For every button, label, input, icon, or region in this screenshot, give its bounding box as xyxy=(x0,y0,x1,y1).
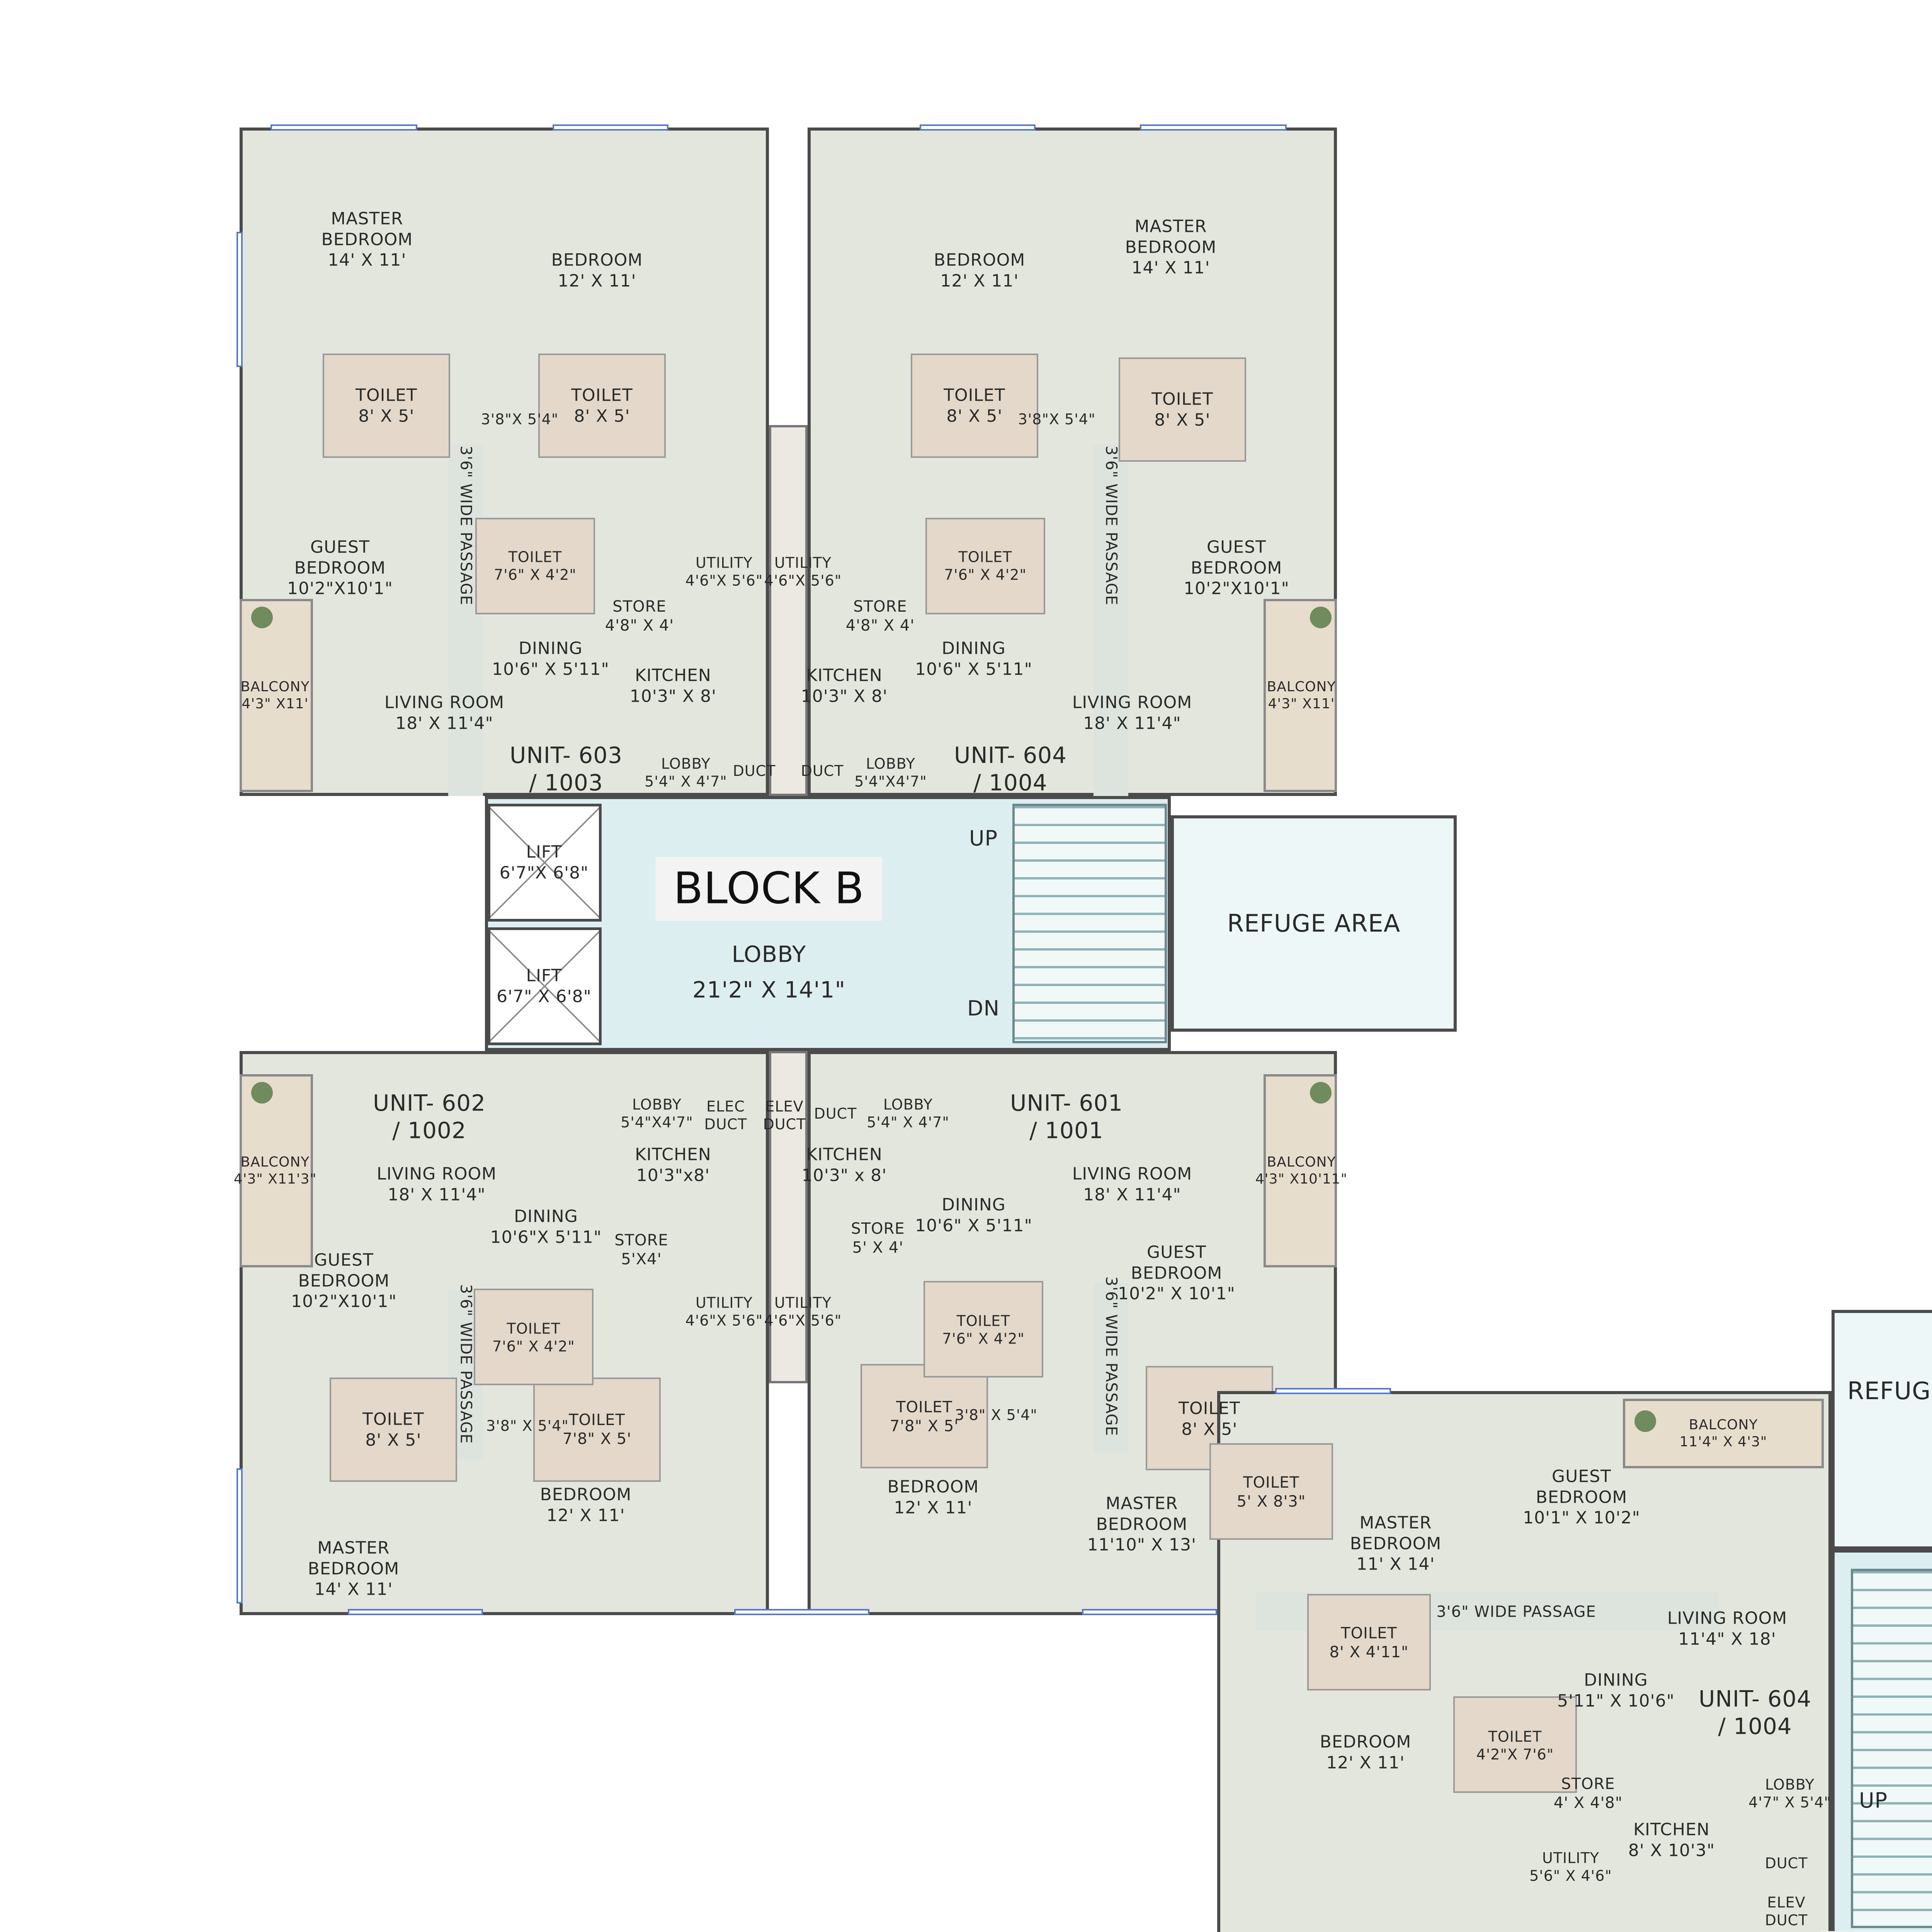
room-label: DINING10'6" X 5'11" xyxy=(492,638,609,679)
room-label: STORE4'8" X 4' xyxy=(846,597,915,635)
lobby-dim-label: LOBBY5'4" X 4'7" xyxy=(867,1096,949,1132)
duct-label: DUCT xyxy=(733,762,776,780)
room-label: BALCONY4'3" X11' xyxy=(241,679,310,713)
duct-label: ELEVDUCT xyxy=(763,1098,806,1134)
lobby-dim-label: LOBBY4'7" X 5'4" xyxy=(1748,1776,1831,1812)
room-label: BEDROOM12' X 11' xyxy=(934,250,1026,291)
room-label: GUESTBEDROOM10'1" X 10'2" xyxy=(1523,1466,1640,1528)
room-label: GUESTBEDROOM10'2"X10'1" xyxy=(1184,537,1289,599)
duct-label: DUCT xyxy=(1765,1854,1808,1872)
room-label: 3'6" WIDE PASSAGE xyxy=(1436,1603,1596,1622)
room-label: TOILET8' X 5' xyxy=(944,385,1005,426)
floor-plan-canvas: REFUGE FLOOR PLAN MASTERBEDROOM14' X 11'… xyxy=(0,0,1932,1932)
window-strip xyxy=(734,1609,869,1615)
duct-label: DUCT xyxy=(801,762,844,780)
room-label: BALCONY4'3" X11'3" xyxy=(234,1154,317,1188)
up-label: UP xyxy=(1859,1788,1888,1813)
room-label: GUESTBEDROOM10'2" X 10'1" xyxy=(1118,1242,1235,1304)
room-label: LIVING ROOM18' X 11'4" xyxy=(377,1163,497,1205)
room-label: TOILET7'8" X 5' xyxy=(563,1411,632,1449)
room-label: TOILET7'6" X 4'2" xyxy=(494,548,577,584)
lobby-label: LOBBY xyxy=(732,941,806,968)
room-label: UTILITY4'6"X 5'6" xyxy=(764,1294,842,1330)
service-core-area xyxy=(769,425,808,796)
room-label: LIVING ROOM11'4" X 18' xyxy=(1667,1608,1787,1649)
unit-604-label: UNIT- 604/ 1004 xyxy=(1699,1685,1811,1740)
room-label: 3'8"X 5'4" xyxy=(1018,410,1096,428)
room-label: BEDROOM12' X 11' xyxy=(888,1476,979,1518)
room-label: TOILET8' X 5' xyxy=(362,1409,424,1450)
room-label: 3'6" WIDE PASSAGE xyxy=(456,446,475,605)
window-strip xyxy=(270,124,417,131)
room-label: MASTERBEDROOM14' X 11' xyxy=(321,208,413,270)
unit-601-label: UNIT- 601/ 1001 xyxy=(1010,1089,1123,1144)
room-label: TOILET5' X 8'3" xyxy=(1237,1473,1306,1511)
plant-icon xyxy=(251,607,273,628)
plant-icon xyxy=(1310,607,1332,628)
window-strip xyxy=(1082,1609,1217,1615)
dn-label: DN xyxy=(967,996,1000,1021)
window-strip xyxy=(1140,124,1287,131)
room-label: LIVING ROOM18' X 11'4" xyxy=(384,692,504,733)
refuge-area-label: REFUGE AREA xyxy=(1227,909,1400,938)
room-label: TOILET8' X 5' xyxy=(571,385,633,426)
room-label: 3'8"X 5'4" xyxy=(481,410,559,428)
duct-label: DUCT xyxy=(814,1105,857,1122)
room-label: TOILET7'8" X 5' xyxy=(890,1398,959,1436)
lobby-dim-label: LOBBY5'4"X4'7" xyxy=(621,1096,693,1132)
room-label: UTILITY4'6"X 5'6" xyxy=(685,1294,763,1330)
unit-603-label: UNIT- 603/ 1003 xyxy=(510,742,622,796)
room-label: BALCONY4'3" X11' xyxy=(1267,679,1336,713)
room-label: 3'6" WIDE PASSAGE xyxy=(456,1284,475,1444)
room-label: 3'6" WIDE PASSAGE xyxy=(1102,1276,1121,1436)
window-strip xyxy=(920,124,1036,131)
window-strip xyxy=(236,232,243,367)
room-label: BEDROOM12' X 11' xyxy=(540,1484,632,1526)
lift-label: LIFT6'7" X 6'8" xyxy=(497,965,592,1007)
window-strip xyxy=(1275,1388,1391,1394)
room-label: DINING5'11" X 10'6" xyxy=(1557,1670,1675,1711)
room-label: TOILET7'6" X 4'2" xyxy=(492,1320,575,1356)
room-label: 3'6" WIDE PASSAGE xyxy=(1102,446,1121,605)
room-label: TOILET8' X 4'11" xyxy=(1329,1624,1408,1662)
room-label: TOILET7'6" X 4'2" xyxy=(942,1312,1025,1348)
room-label: DINING10'6"X 5'11" xyxy=(490,1206,602,1247)
room-label: TOILET8' X 5' xyxy=(355,385,417,426)
room-label: BALCONY4'3" X10'11" xyxy=(1255,1154,1347,1188)
room-label: MASTERBEDROOM11'10" X 13' xyxy=(1087,1493,1197,1555)
plant-icon xyxy=(1310,1082,1332,1104)
room-label: KITCHEN8' X 10'3" xyxy=(1628,1819,1715,1861)
window-strip xyxy=(348,1609,483,1615)
room-label: STORE5'X4' xyxy=(614,1231,668,1269)
room-label: MASTERBEDROOM14' X 11' xyxy=(308,1537,400,1600)
room-label: BEDROOM12' X 11' xyxy=(551,250,643,291)
room-label: KITCHEN10'3" x 8' xyxy=(802,1144,887,1185)
refuge-area-label: REFUGE AREA xyxy=(1847,1376,1932,1406)
lift-label: LIFT6'7"X 6'8" xyxy=(500,842,589,883)
room-label: KITCHEN10'3" X 8' xyxy=(801,665,888,706)
room-label: MASTERBEDROOM14' X 11' xyxy=(1125,216,1217,278)
unit-604-label: UNIT- 604/ 1004 xyxy=(954,742,1067,796)
room-label: 3'8" X 5'4" xyxy=(486,1417,569,1435)
room-label: BALCONY11'4" X 4'3" xyxy=(1680,1417,1767,1451)
duct-label: ELECDUCT xyxy=(704,1098,747,1134)
room-label: LIVING ROOM18' X 11'4" xyxy=(1072,1163,1192,1205)
room-label: STORE5' X 4' xyxy=(851,1219,905,1257)
room-label: MASTERBEDROOM11' X 14' xyxy=(1350,1512,1442,1575)
room-label: DINING10'6" X 5'11" xyxy=(915,1194,1032,1236)
room-label: LIVING ROOM18' X 11'4" xyxy=(1072,692,1192,733)
room-label: GUESTBEDROOM10'2"X10'1" xyxy=(291,1250,397,1312)
room-label: UTILITY4'6"X 5'6" xyxy=(764,554,842,590)
room-label: BEDROOM12' X 11' xyxy=(1320,1731,1412,1773)
stairs-area xyxy=(1851,1569,1932,1928)
lobby-dim-label: LOBBY5'4" X 4'7" xyxy=(645,755,727,791)
room-label: TOILET8' X 5' xyxy=(1179,1398,1240,1439)
stairs-area xyxy=(1012,804,1167,1043)
duct-label: ELEVDUCT xyxy=(1765,1894,1808,1930)
room-label: 3'8" X 5'4" xyxy=(955,1406,1037,1424)
plant-icon xyxy=(1634,1410,1656,1432)
plant-icon xyxy=(251,1082,273,1104)
lobby-dim-label: 21'2" X 14'1" xyxy=(692,976,845,1004)
window-strip xyxy=(236,1468,243,1604)
block-b-label: BLOCK B xyxy=(656,857,882,921)
room-label: TOILET4'2"X 7'6" xyxy=(1476,1728,1554,1764)
room-label: GUESTBEDROOM10'2"X10'1" xyxy=(287,537,393,599)
room-label: STORE4' X 4'8" xyxy=(1554,1775,1623,1813)
lobby-dim-label: LOBBY5'4"X4'7" xyxy=(854,755,927,791)
room-label: DINING10'6" X 5'11" xyxy=(915,638,1032,679)
room-label: UTILITY5'6" X 4'6" xyxy=(1529,1849,1612,1885)
room-label: TOILET7'6" X 4'2" xyxy=(944,548,1027,584)
room-label: STORE4'8" X 4' xyxy=(605,597,674,635)
room-label: KITCHEN10'3"x8' xyxy=(635,1144,711,1185)
room-label: UTILITY4'6"X 5'6" xyxy=(685,554,763,590)
unit-602-label: UNIT- 602/ 1002 xyxy=(373,1089,486,1144)
up-label: UP xyxy=(969,826,998,851)
window-strip xyxy=(553,124,668,131)
room-label: TOILET8' X 5' xyxy=(1151,389,1213,430)
room-label: KITCHEN10'3" X 8' xyxy=(630,665,717,706)
refuge-area xyxy=(1832,1310,1932,1549)
